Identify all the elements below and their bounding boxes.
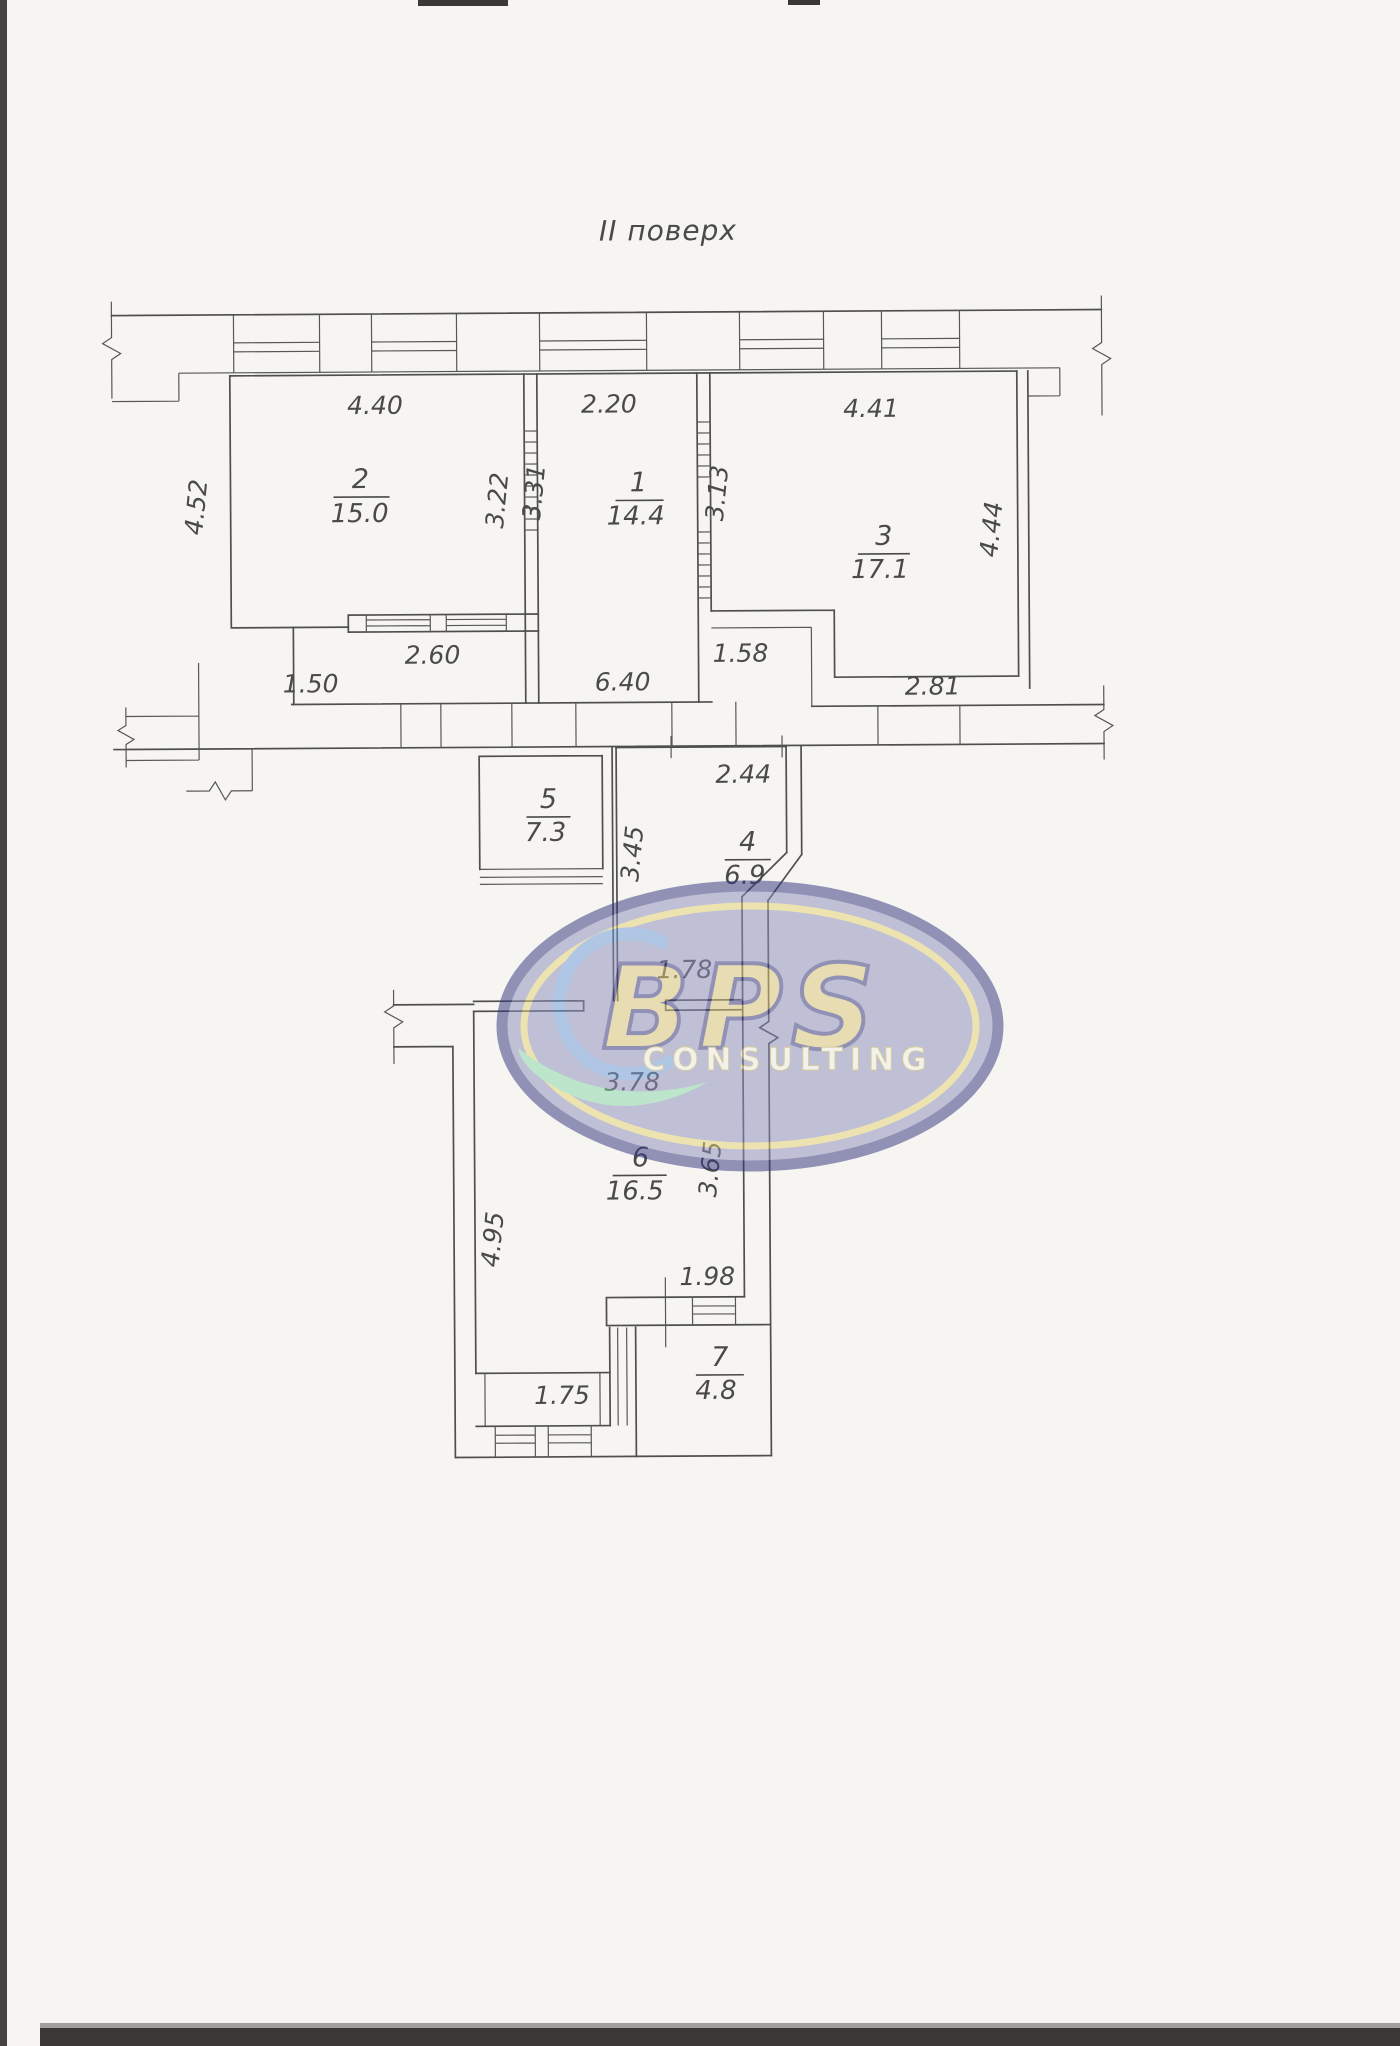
dim-room2-right: 3.22 — [480, 471, 514, 529]
dim-room1-left: 3.31 — [517, 463, 551, 521]
break-top-right — [1092, 295, 1111, 415]
room-3-area: 17.1 — [851, 555, 909, 585]
dim-room6-step: 1.98 — [679, 1262, 735, 1291]
room-6-area: 16.5 — [606, 1176, 664, 1206]
scan-strip-bottom — [40, 2028, 1400, 2046]
room-1-number: 1 — [630, 467, 647, 498]
floor-plan: II поверх 4.40 4.52 3.22 2 15.0 2.20 3.3… — [102, 211, 1118, 1459]
dim-room1-top: 2.20 — [581, 389, 637, 418]
plan-labels: II поверх 4.40 4.52 3.22 2 15.0 2.20 3.3… — [177, 212, 1014, 1412]
room-2-walls — [230, 374, 539, 705]
room-7-area: 4.8 — [695, 1376, 737, 1406]
scanned-page: II поверх 4.40 4.52 3.22 2 15.0 2.20 3.3… — [0, 0, 1400, 2046]
dim-corridor: 6.40 — [595, 667, 651, 696]
scan-mark-top-2 — [788, 0, 820, 5]
watermark-subtitle: CONSULTING — [642, 1042, 933, 1078]
bps-watermark: BPS CONSULTING — [502, 886, 998, 1166]
dim-room7-left: 1.75 — [534, 1381, 590, 1410]
dim-room2-left: 4.52 — [179, 478, 213, 536]
break-lower-left — [385, 990, 403, 1064]
dim-room4-left: 3.45 — [615, 824, 649, 882]
room-1-walls — [697, 373, 712, 702]
room-4-number: 4 — [739, 827, 756, 858]
room-7-number: 7 — [711, 1342, 728, 1373]
break-corridor-right — [1095, 685, 1113, 759]
room-2-number: 2 — [352, 464, 369, 495]
dim-room3-right: 4.44 — [974, 500, 1008, 558]
dim-room2-top: 4.40 — [347, 391, 403, 420]
room-1-area: 14.4 — [607, 501, 665, 531]
dim-room4-top: 2.44 — [715, 760, 771, 789]
room-5-area: 7.3 — [525, 818, 567, 848]
dim-room6-left: 4.95 — [475, 1210, 509, 1268]
dim-niche: 1.58 — [713, 639, 769, 668]
top-wall-window-band — [111, 310, 1102, 402]
dim-room3-top: 4.41 — [843, 394, 899, 423]
floor-plan-drawing: II поверх 4.40 4.52 3.22 2 15.0 2.20 3.3… — [0, 0, 1400, 2046]
room-5-number: 5 — [540, 784, 557, 815]
room-2-area: 15.0 — [331, 499, 389, 529]
dim-balcony-window: 2.60 — [405, 640, 461, 669]
scan-mark-top-1 — [418, 0, 508, 6]
dim-hall-width: 1.50 — [283, 669, 339, 698]
dim-room3-bottom: 2.81 — [905, 671, 961, 700]
dim-room1-right: 3.13 — [700, 464, 734, 522]
break-stair-stub — [186, 782, 252, 800]
room-3-number: 3 — [875, 521, 892, 552]
scan-edge-left — [0, 0, 7, 2046]
floor-title: II поверх — [599, 214, 737, 248]
